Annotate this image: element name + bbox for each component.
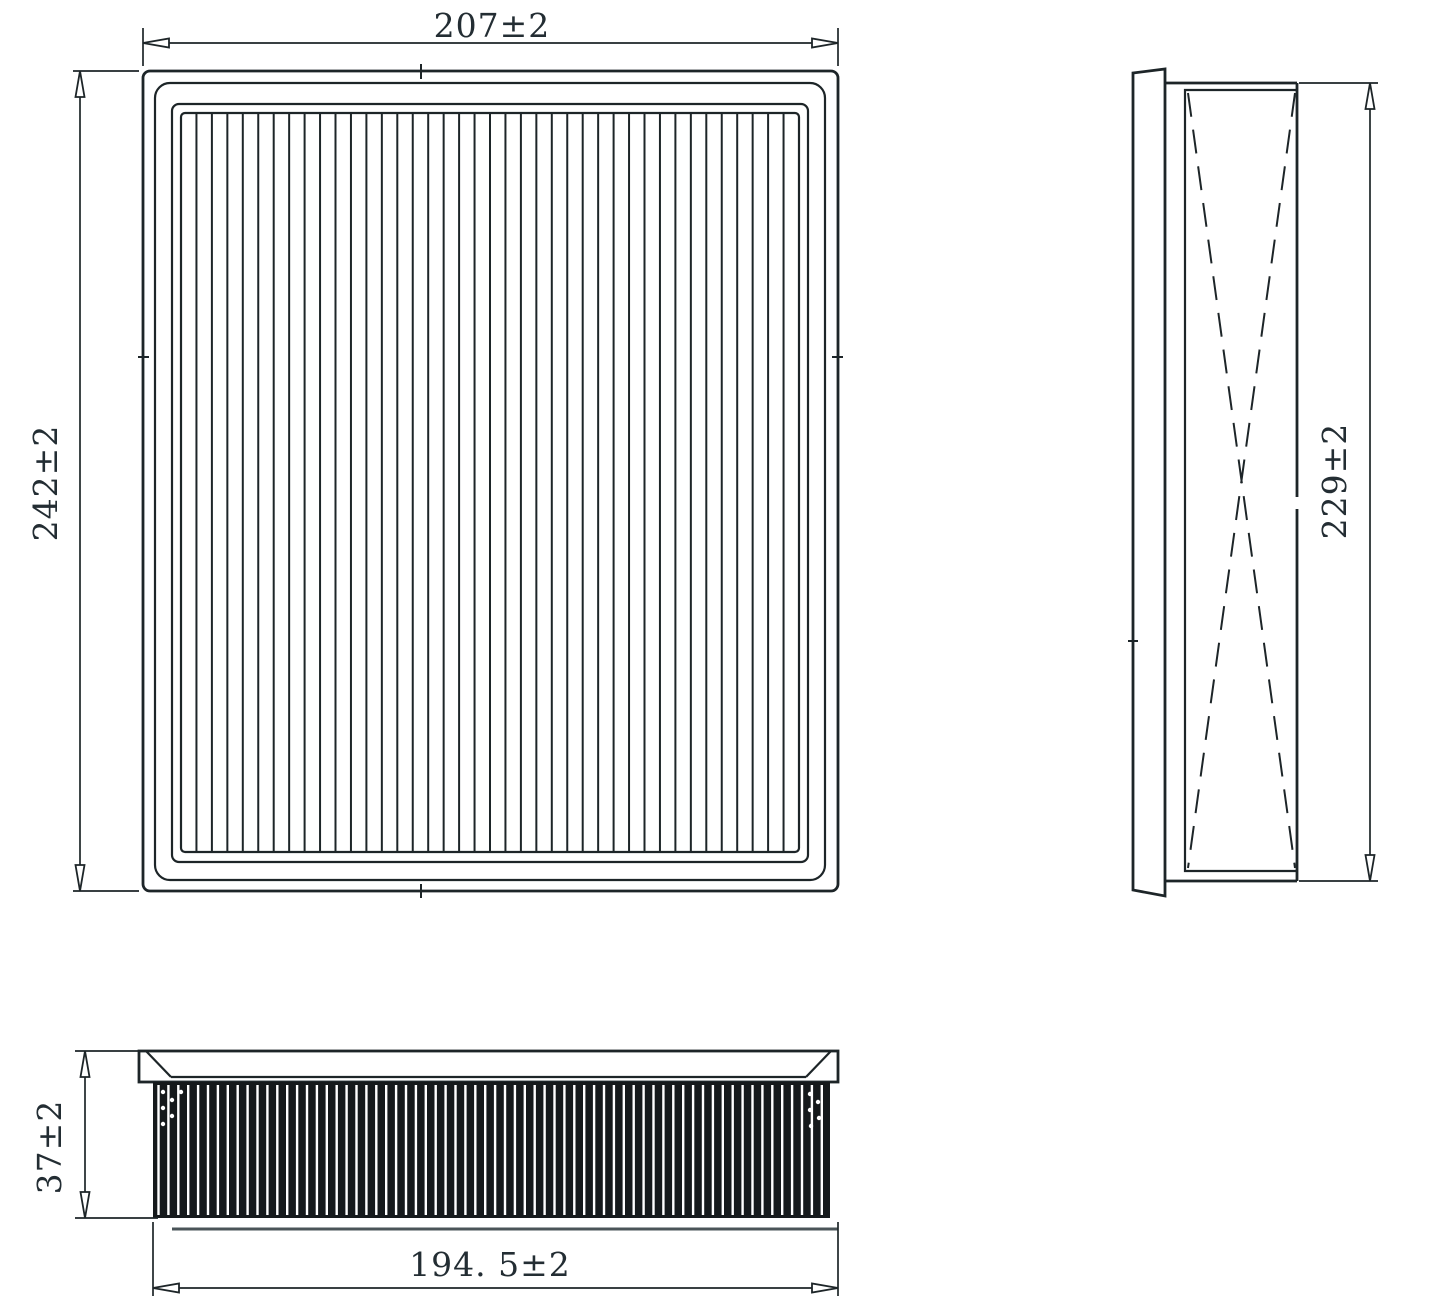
front-height-label: 242±2 — [26, 425, 65, 542]
dimension-front-width: 207±2 — [143, 6, 838, 66]
dimension-arrowhead — [81, 1192, 90, 1218]
dimension-arrowhead — [76, 865, 85, 891]
bottom-view — [139, 1051, 838, 1229]
dimension-arrowhead — [1366, 83, 1375, 109]
front-view — [138, 64, 843, 898]
front-width-label: 207±2 — [434, 6, 551, 45]
bottom-right-chamfer — [806, 1051, 831, 1077]
dimension-arrowhead — [812, 39, 838, 48]
side-view — [1128, 69, 1302, 896]
dimension-profile-width: 194. 5±2 — [153, 1222, 838, 1296]
side-flange — [1133, 69, 1165, 896]
dimension-arrowhead — [76, 71, 85, 97]
profile-depth-label: 37±2 — [30, 1100, 69, 1195]
side-edge-break — [1292, 497, 1302, 509]
dimension-arrowhead — [153, 1284, 179, 1293]
side-height-label: 229±2 — [1315, 423, 1354, 540]
dimension-arrowhead — [81, 1051, 90, 1077]
dimension-arrowhead — [812, 1284, 838, 1293]
technical-drawing: 207±2 242±2 229±2 37±2 194. 5±2 — [0, 0, 1432, 1301]
front-pleat-lines — [196, 113, 783, 852]
dimension-side-height: 229±2 — [1299, 83, 1378, 881]
profile-width-label: 194. 5±2 — [409, 1245, 571, 1284]
drawing-sheet: 207±2 242±2 229±2 37±2 194. 5±2 — [0, 0, 1432, 1301]
dimension-arrowhead — [143, 39, 169, 48]
bottom-left-chamfer — [146, 1051, 171, 1077]
dimension-arrowhead — [1366, 855, 1375, 881]
pleated-media-block — [153, 1082, 830, 1218]
dimension-front-height: 242±2 — [26, 71, 139, 891]
